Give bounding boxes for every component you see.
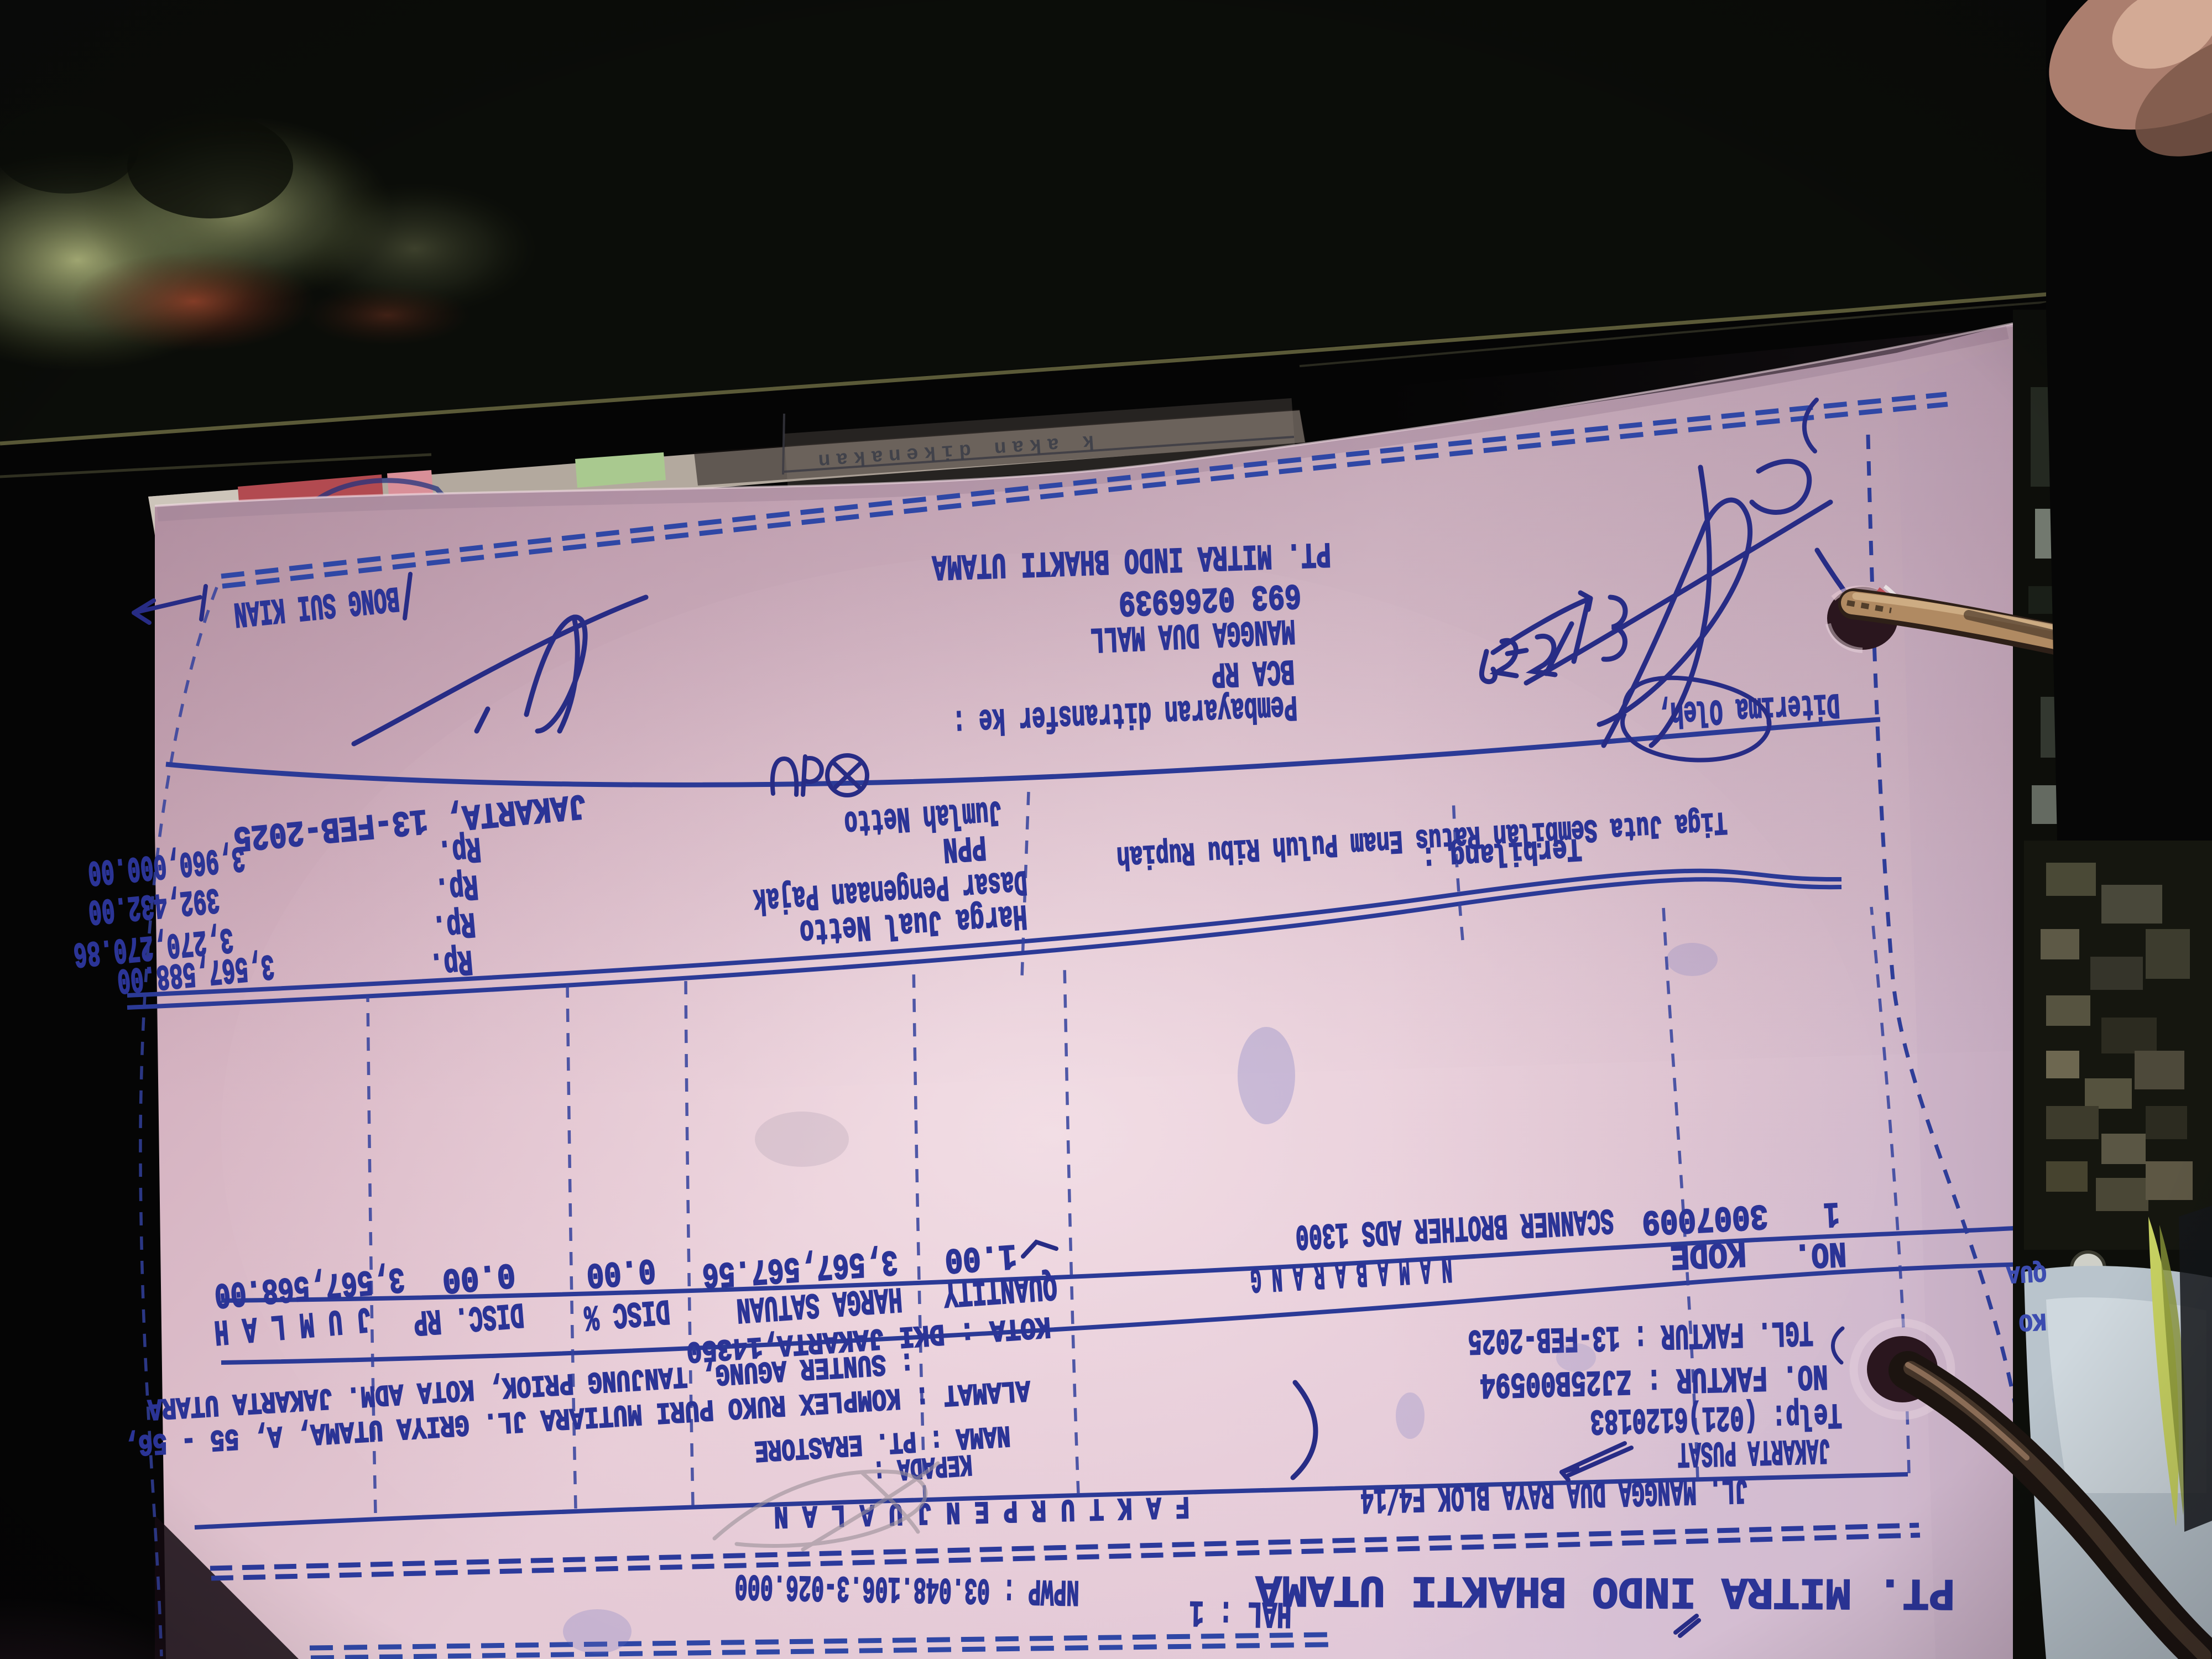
svg-text:QUA: QUA (2006, 1258, 2047, 1287)
svg-text:KO: KO (2018, 1306, 2047, 1335)
